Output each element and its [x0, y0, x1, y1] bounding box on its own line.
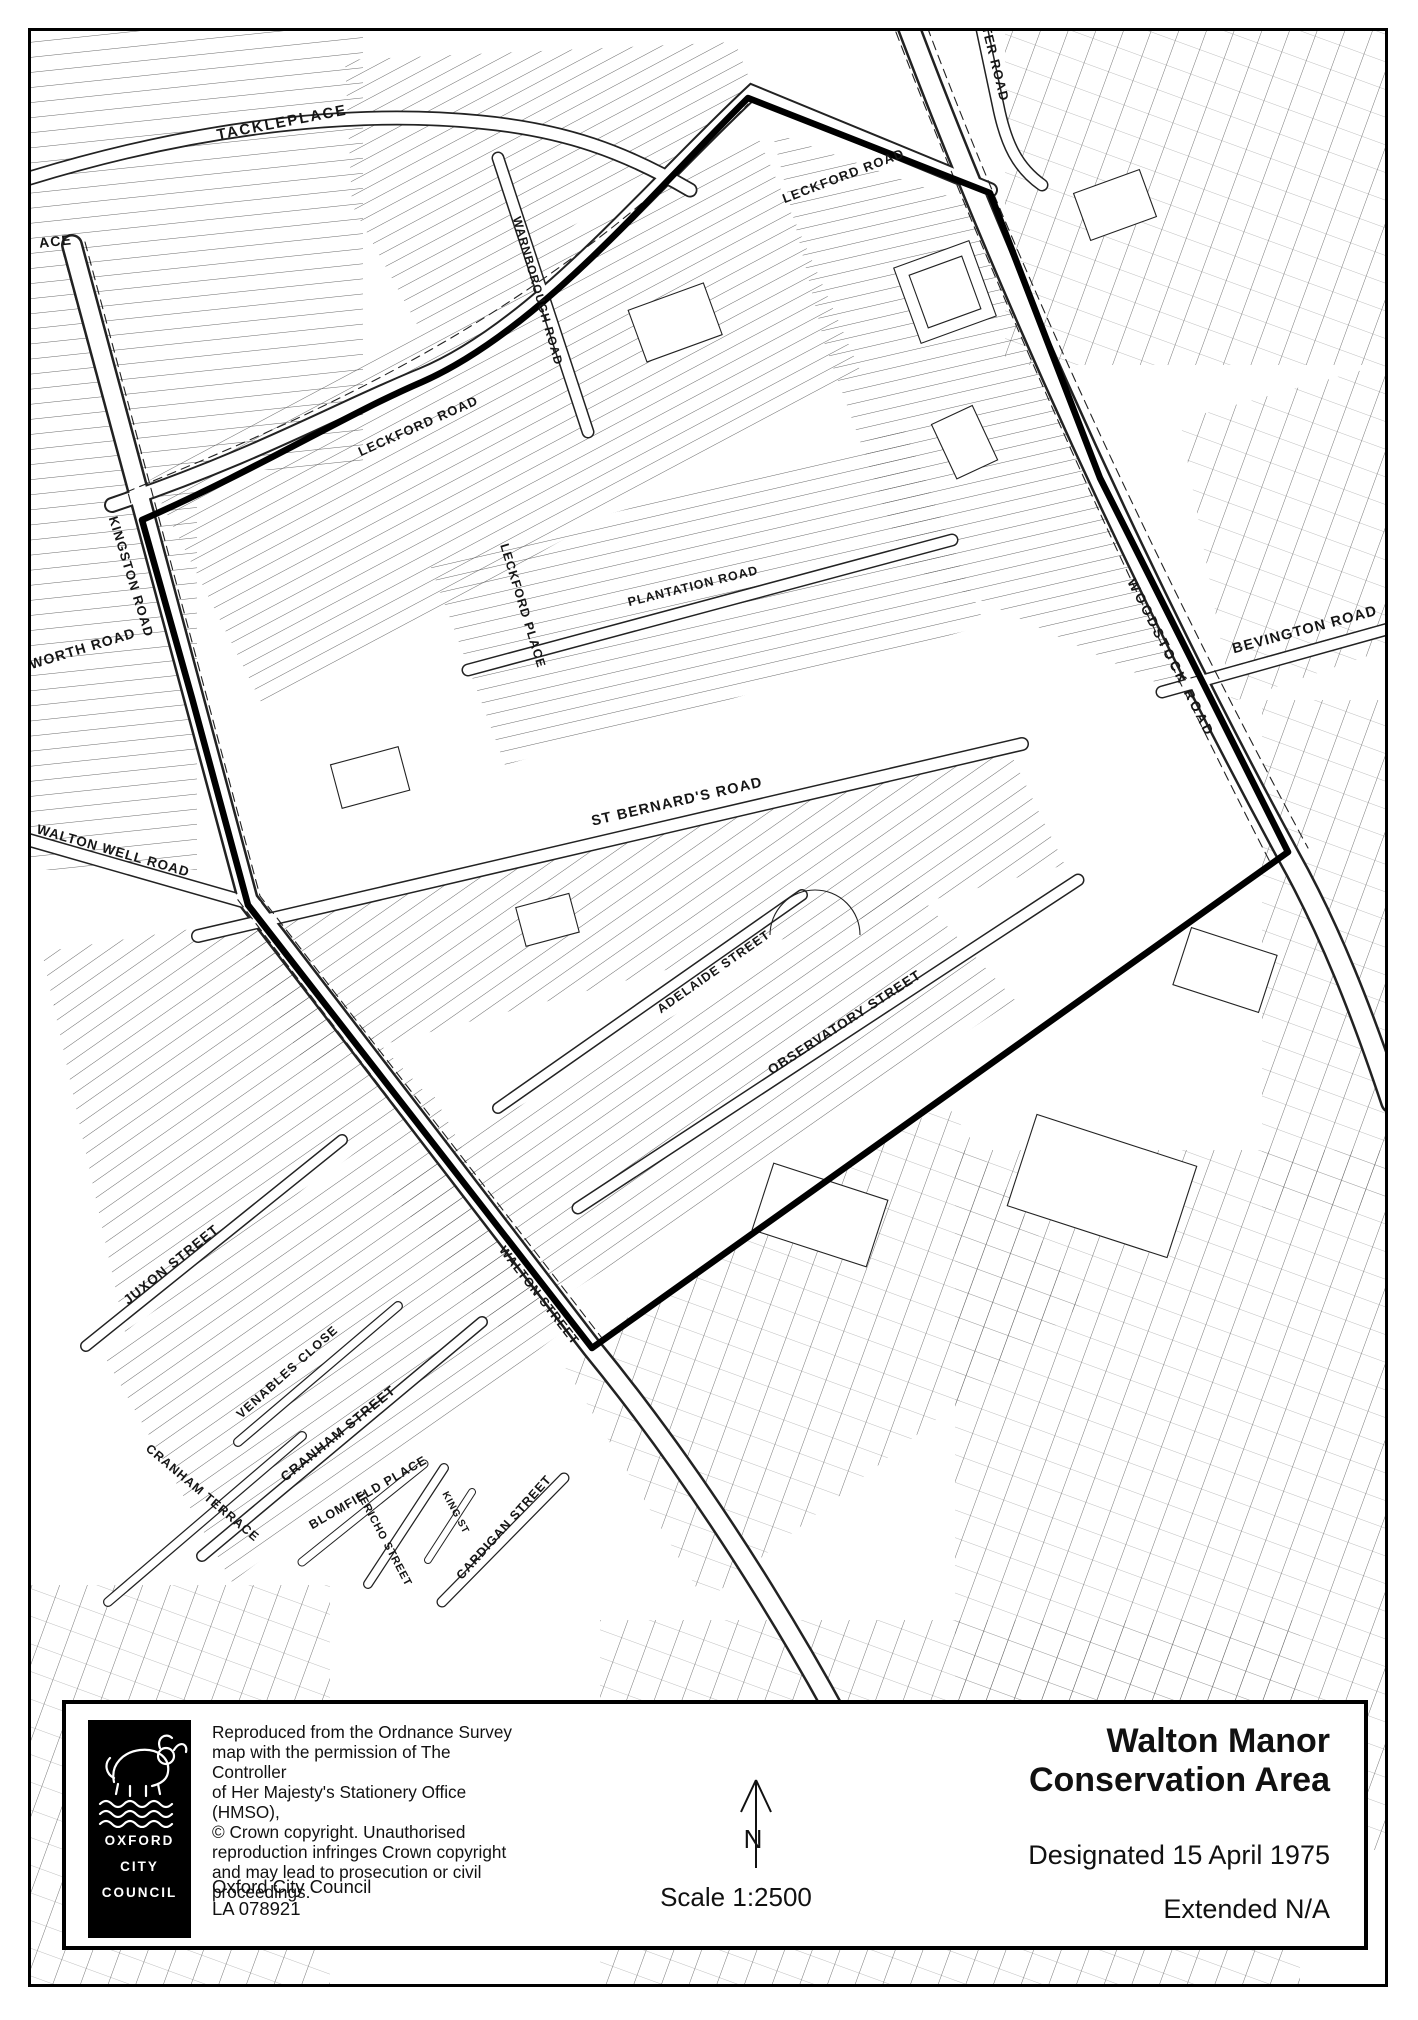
logo-line-city: CITY — [88, 1854, 191, 1880]
council-name: Oxford City Council — [212, 1876, 512, 1898]
title-line-1: Walton Manor — [1029, 1722, 1330, 1761]
street-label: JERICHO STREET — [353, 1489, 414, 1589]
scanned-map-sheet: TACKLEPLACE LECKFORD ROAD STER ROAD WARN… — [0, 0, 1418, 2020]
oxford-city-council-logo: OXFORD CITY COUNCIL — [88, 1720, 191, 1938]
copyright-notice: Reproduced from the Ordnance Survey map … — [212, 1722, 512, 1902]
map-frame: TACKLEPLACE LECKFORD ROAD STER ROAD WARN… — [28, 28, 1388, 1987]
council-attribution: Oxford City Council LA 078921 — [212, 1876, 512, 1920]
copyright-line: © Crown copyright. Unauthorised — [212, 1822, 512, 1842]
ox-and-ford-crest-icon — [88, 1720, 191, 1828]
copyright-line: map with the permission of The Controlle… — [212, 1742, 512, 1782]
north-label: N — [744, 1824, 763, 1854]
map-title: Walton Manor Conservation Area — [1029, 1722, 1330, 1800]
logo-line-council: COUNCIL — [88, 1880, 191, 1906]
title-line-2: Conservation Area — [1029, 1761, 1330, 1800]
logo-line-oxford: OXFORD — [88, 1828, 191, 1854]
licence-number: LA 078921 — [212, 1898, 512, 1920]
extended-status: Extended N/A — [1163, 1894, 1330, 1925]
info-panel: OXFORD CITY COUNCIL Reproduced from the … — [62, 1700, 1368, 1950]
logo-text: OXFORD CITY COUNCIL — [88, 1828, 191, 1906]
north-arrow: N — [718, 1766, 798, 1886]
designated-date: Designated 15 April 1975 — [1028, 1840, 1330, 1871]
scale-label: Scale 1:2500 — [626, 1882, 846, 1913]
copyright-line: of Her Majesty's Stationery Office (HMSO… — [212, 1782, 512, 1822]
copyright-line: Reproduced from the Ordnance Survey — [212, 1722, 512, 1742]
copyright-line: reproduction infringes Crown copyright — [212, 1842, 512, 1862]
map-canvas: TACKLEPLACE LECKFORD ROAD STER ROAD WARN… — [28, 28, 1388, 1987]
